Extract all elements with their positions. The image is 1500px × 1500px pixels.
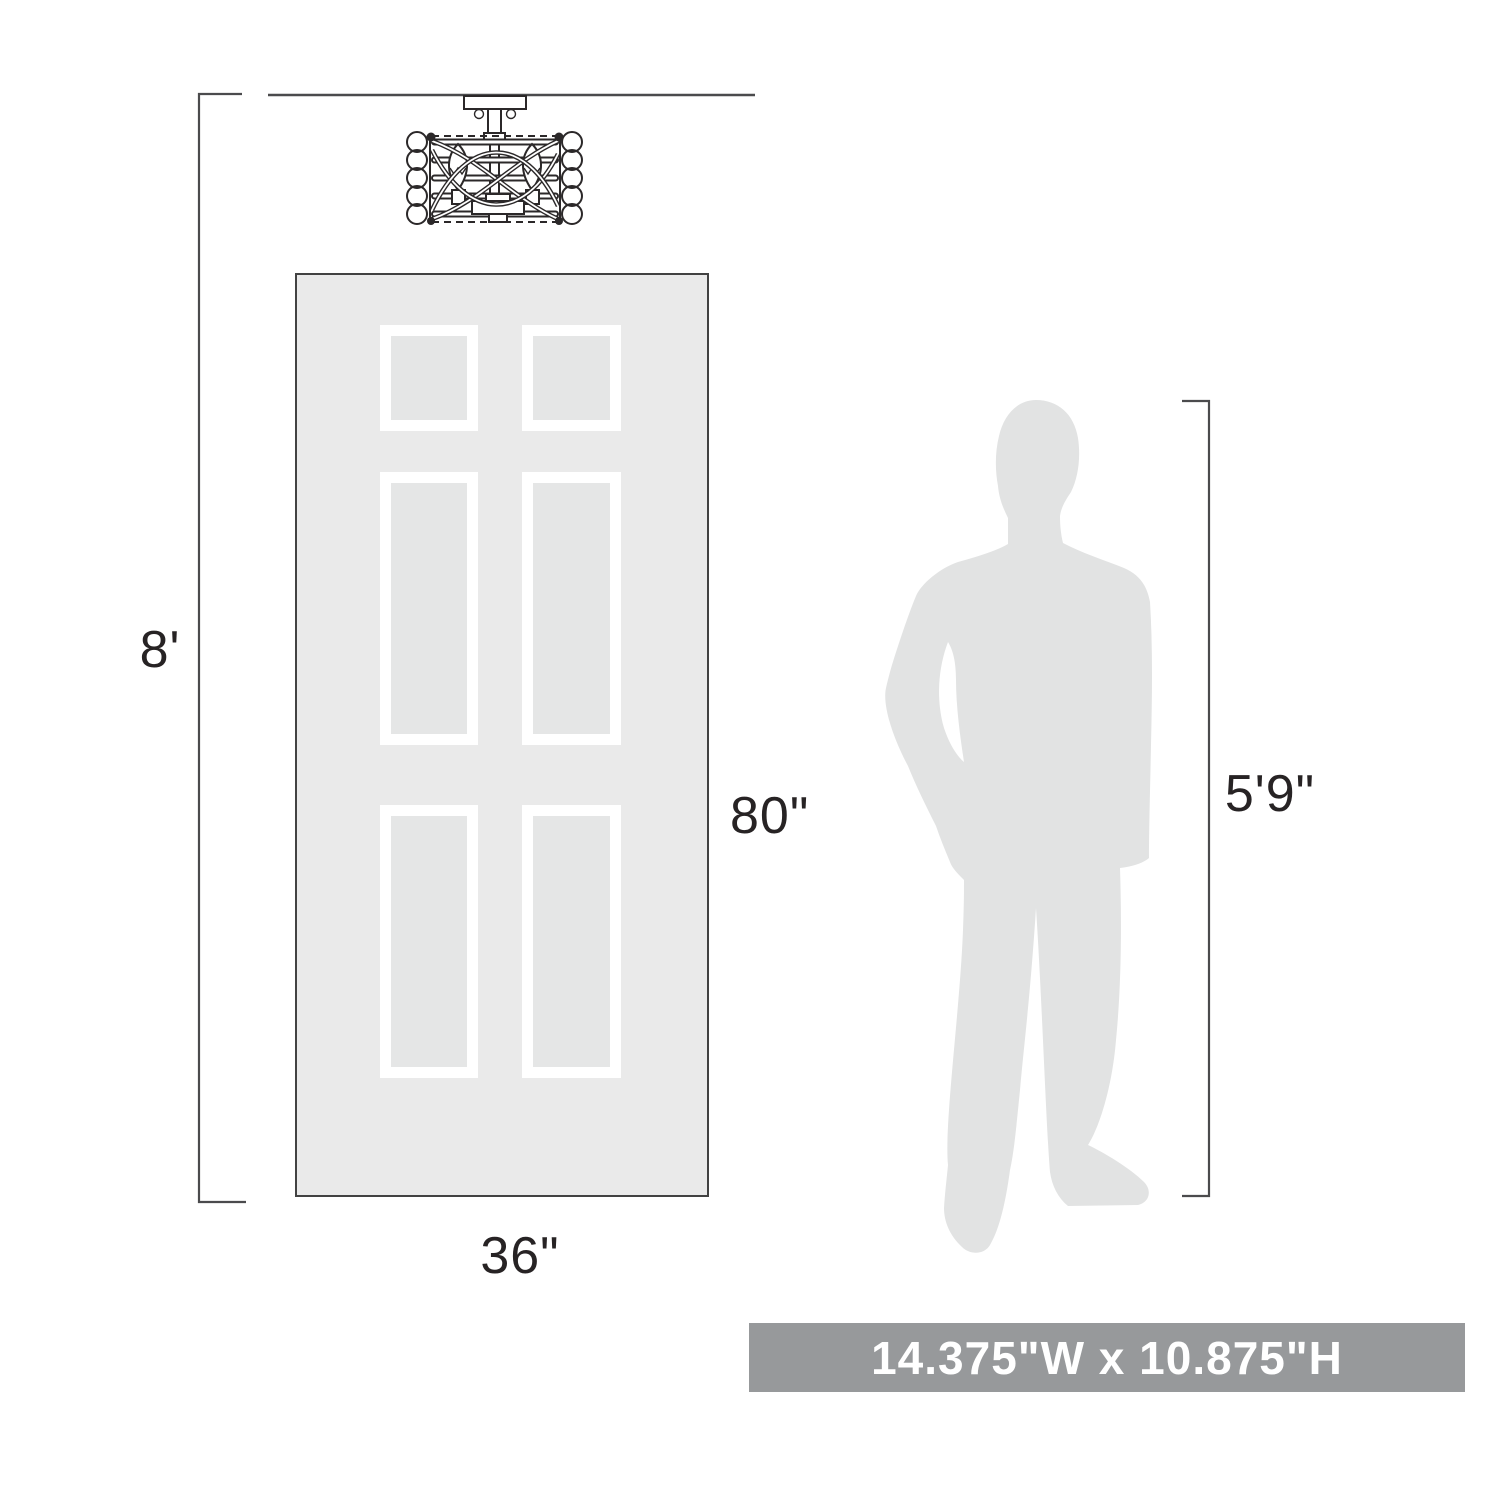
- door-panel: [380, 472, 478, 745]
- person-silhouette-icon: [885, 400, 1152, 1253]
- product-dimensions-banner: 14.375"W x 10.875"H: [749, 1323, 1465, 1392]
- door-panel: [522, 805, 621, 1078]
- door-panel: [380, 805, 478, 1078]
- door-height-label: 80": [730, 788, 809, 844]
- diagram-graphics: [0, 0, 1500, 1500]
- ceiling-height-dimension-line: [199, 94, 246, 1202]
- person-height-label: 5'9": [1205, 766, 1335, 822]
- door-width-label: 36": [455, 1228, 585, 1284]
- door-panel: [522, 325, 621, 431]
- door-panel: [380, 325, 478, 431]
- ceiling-light-fixture-icon: [407, 96, 582, 225]
- door-panel: [522, 472, 621, 745]
- ceiling-height-label: 8': [115, 622, 205, 678]
- size-comparison-diagram: 8' 80" 36" 5'9" 14.375"W x 10.875"H: [0, 0, 1500, 1500]
- door-icon: [295, 273, 709, 1197]
- product-dimensions-text: 14.375"W x 10.875"H: [871, 1331, 1343, 1385]
